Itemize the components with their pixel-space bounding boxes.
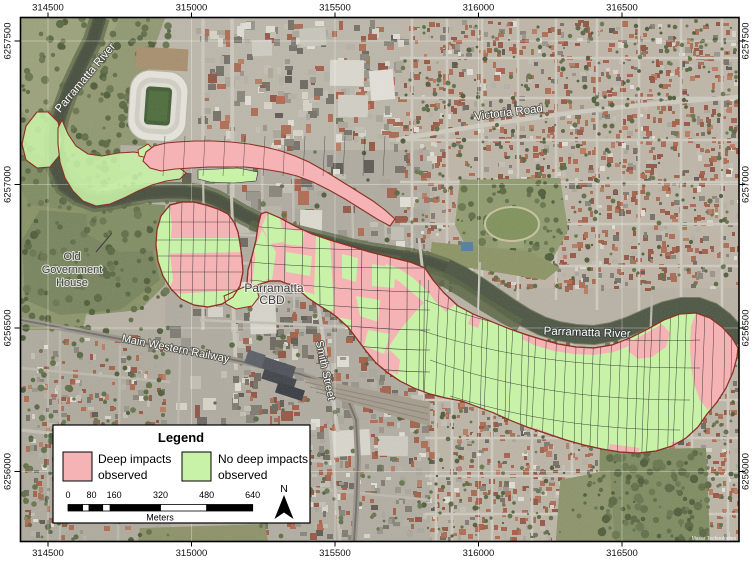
svg-text:0: 0 bbox=[65, 490, 70, 500]
svg-text:314500: 314500 bbox=[32, 548, 64, 559]
svg-text:6256500: 6256500 bbox=[741, 310, 752, 347]
svg-text:316000: 316000 bbox=[463, 548, 495, 559]
svg-text:315500: 315500 bbox=[319, 548, 351, 559]
svg-text:320: 320 bbox=[153, 490, 168, 500]
svg-text:6257500: 6257500 bbox=[3, 23, 14, 60]
svg-text:316000: 316000 bbox=[463, 3, 495, 14]
svg-text:House: House bbox=[56, 277, 88, 289]
svg-text:observed: observed bbox=[98, 468, 147, 482]
svg-text:316500: 316500 bbox=[606, 548, 638, 559]
svg-text:N: N bbox=[280, 483, 288, 495]
svg-text:314500: 314500 bbox=[32, 3, 64, 14]
svg-text:Government: Government bbox=[42, 264, 103, 276]
svg-text:316500: 316500 bbox=[606, 3, 638, 14]
svg-text:6257000: 6257000 bbox=[741, 166, 752, 203]
svg-text:CBD: CBD bbox=[259, 293, 285, 307]
svg-text:Old: Old bbox=[63, 251, 80, 263]
svg-text:315000: 315000 bbox=[176, 3, 208, 14]
svg-text:315500: 315500 bbox=[319, 3, 351, 14]
svg-text:Legend: Legend bbox=[158, 430, 204, 445]
svg-text:640: 640 bbox=[245, 490, 260, 500]
svg-text:No deep impacts: No deep impacts bbox=[218, 452, 308, 466]
svg-text:Meters: Meters bbox=[146, 513, 174, 523]
svg-text:160: 160 bbox=[107, 490, 122, 500]
svg-text:480: 480 bbox=[199, 490, 214, 500]
svg-text:6257500: 6257500 bbox=[741, 23, 752, 60]
svg-text:315000: 315000 bbox=[176, 548, 208, 559]
svg-text:Deep impacts: Deep impacts bbox=[98, 452, 171, 466]
svg-text:6256500: 6256500 bbox=[3, 310, 14, 347]
svg-text:80: 80 bbox=[86, 490, 96, 500]
svg-text:observed: observed bbox=[218, 468, 267, 482]
svg-text:6257000: 6257000 bbox=[3, 166, 14, 203]
